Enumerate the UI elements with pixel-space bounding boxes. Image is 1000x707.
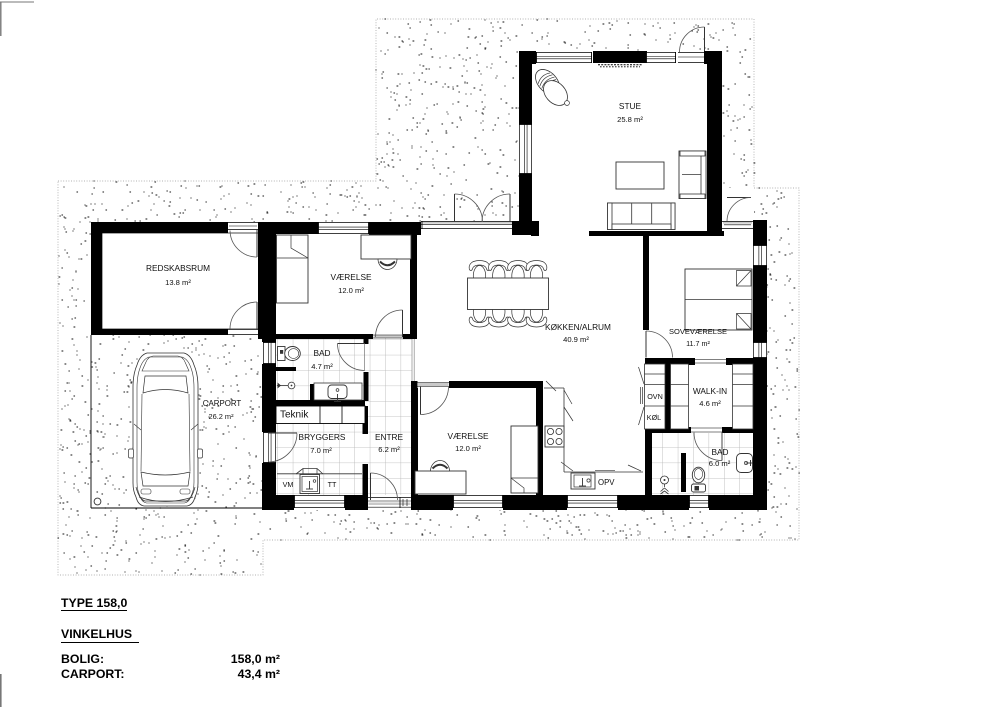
svg-text:KØL: KØL: [647, 413, 661, 422]
svg-text:Teknik: Teknik: [280, 410, 309, 421]
svg-text:WALK-IN: WALK-IN: [693, 386, 727, 396]
svg-text:SOVEVÆRELSE: SOVEVÆRELSE: [669, 327, 727, 336]
svg-text:7.0 m²: 7.0 m²: [310, 446, 332, 455]
svg-text:BAD: BAD: [711, 447, 728, 457]
svg-text:12.0 m²: 12.0 m²: [338, 286, 364, 295]
svg-text:VM: VM: [283, 480, 294, 489]
svg-text:4.7 m²: 4.7 m²: [311, 362, 333, 371]
svg-text:OVN: OVN: [647, 392, 663, 401]
svg-text:VÆRELSE: VÆRELSE: [330, 272, 372, 282]
svg-text:25.8 m²: 25.8 m²: [617, 115, 643, 124]
svg-text:ENTRE: ENTRE: [375, 432, 404, 442]
svg-text:13.8 m²: 13.8 m²: [165, 278, 191, 287]
svg-text:12.0 m²: 12.0 m²: [455, 444, 481, 453]
svg-text:KØKKEN/ALRUM: KØKKEN/ALRUM: [545, 322, 611, 332]
svg-text:STUE: STUE: [619, 101, 642, 111]
svg-text:6.0 m²: 6.0 m²: [709, 459, 731, 468]
svg-text:OPV: OPV: [598, 478, 615, 487]
svg-text:CARPORT: CARPORT: [203, 399, 242, 408]
svg-text:TT: TT: [328, 480, 337, 489]
svg-text:BRYGGERS: BRYGGERS: [299, 432, 346, 442]
svg-text:BAD: BAD: [313, 348, 330, 358]
svg-text:VÆRELSE: VÆRELSE: [447, 431, 489, 441]
svg-text:6.2 m²: 6.2 m²: [378, 445, 400, 454]
svg-text:11.7 m²: 11.7 m²: [686, 339, 710, 348]
svg-text:40.9 m²: 40.9 m²: [563, 335, 589, 344]
svg-text:26.2 m²: 26.2 m²: [208, 412, 234, 421]
svg-text:REDSKABSRUM: REDSKABSRUM: [146, 263, 210, 273]
svg-text:4.6 m²: 4.6 m²: [699, 399, 721, 408]
